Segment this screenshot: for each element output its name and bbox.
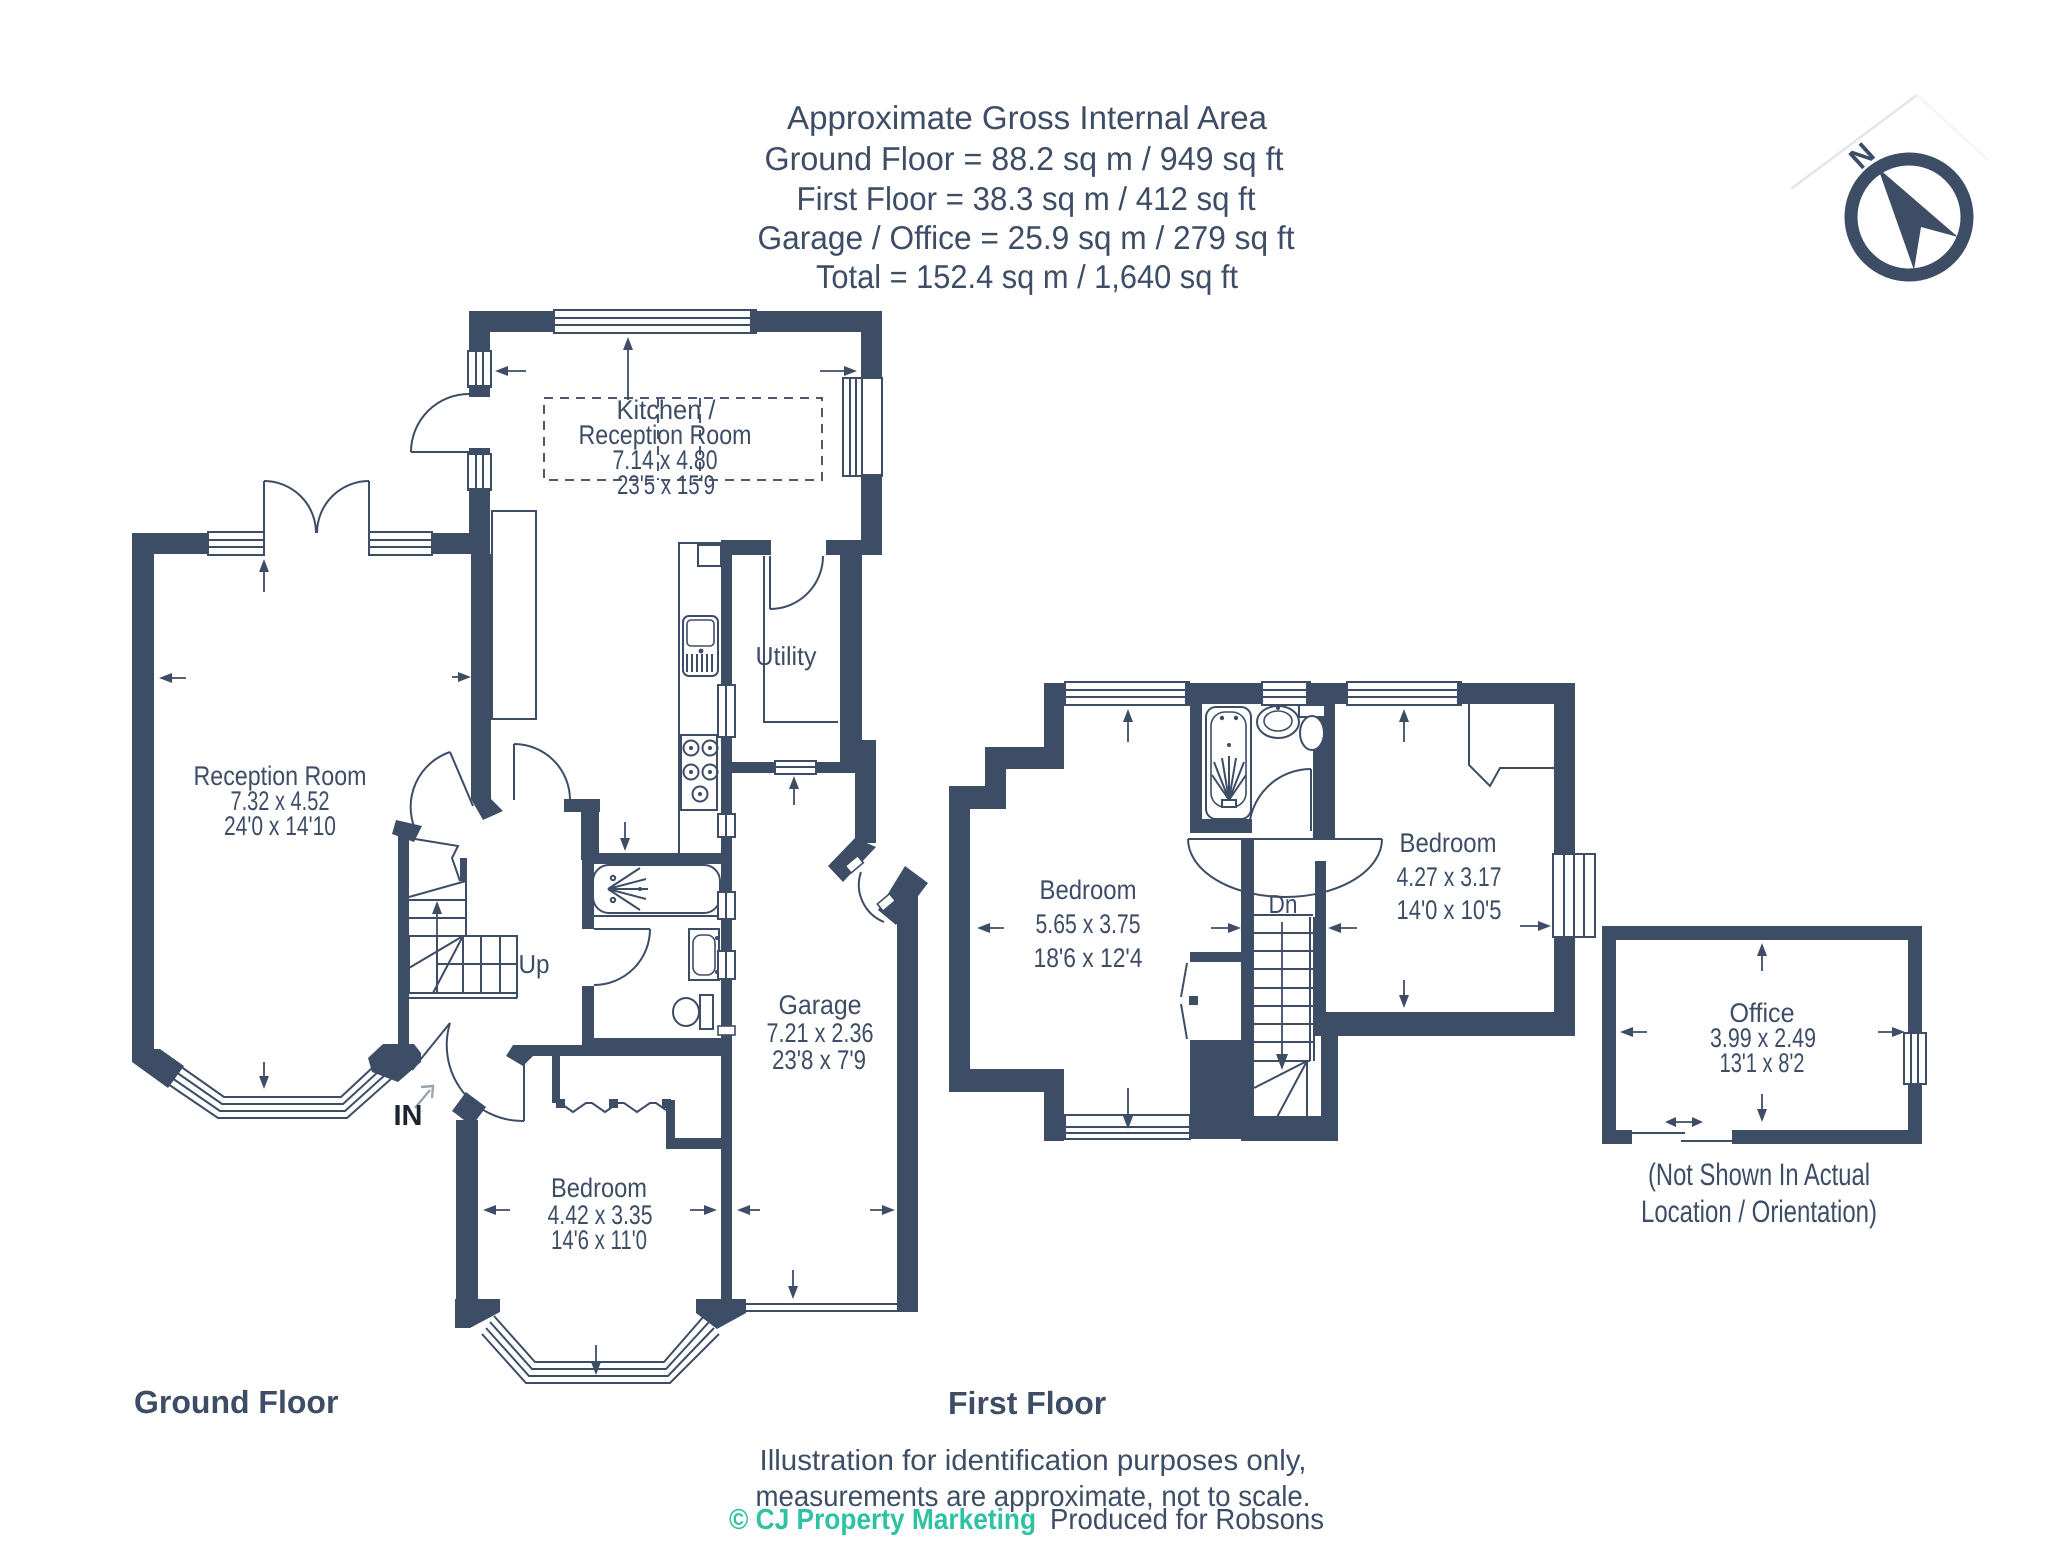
- svg-text:First Floor: First Floor: [948, 1385, 1106, 1421]
- svg-text:24'0 x 14'10: 24'0 x 14'10: [224, 811, 336, 841]
- svg-text:7.21 x 2.36: 7.21 x 2.36: [767, 1018, 874, 1048]
- svg-text:Bedroom: Bedroom: [1400, 828, 1497, 858]
- svg-text:23'5 x 15'9: 23'5 x 15'9: [617, 470, 715, 500]
- svg-text:© CJ Property Marketing: © CJ Property Marketing: [729, 1504, 1036, 1536]
- svg-text:IN: IN: [394, 1100, 423, 1132]
- svg-text:Approximate Gross Internal Are: Approximate Gross Internal Area: [787, 99, 1268, 136]
- svg-text:4.27 x 3.17: 4.27 x 3.17: [1397, 862, 1502, 892]
- svg-text:Produced for Robsons: Produced for Robsons: [1050, 1504, 1324, 1536]
- svg-text:(Not Shown In Actual: (Not Shown In Actual: [1648, 1157, 1870, 1192]
- svg-text:23'8 x 7'9: 23'8 x 7'9: [772, 1045, 866, 1075]
- svg-text:Garage: Garage: [779, 990, 862, 1020]
- svg-text:Ground Floor: Ground Floor: [134, 1384, 338, 1420]
- svg-text:13'1 x 8'2: 13'1 x 8'2: [1720, 1048, 1805, 1078]
- svg-text:First Floor = 38.3 sq m / 412: First Floor = 38.3 sq m / 412 sq ft: [797, 180, 1256, 217]
- svg-text:14'6 x 11'0: 14'6 x 11'0: [551, 1225, 647, 1255]
- svg-text:Illustration for identificatio: Illustration for identification purposes…: [760, 1445, 1307, 1477]
- svg-text:Utility: Utility: [756, 641, 817, 671]
- svg-text:14'0 x 10'5: 14'0 x 10'5: [1397, 895, 1502, 925]
- svg-text:Dn: Dn: [1269, 889, 1298, 919]
- svg-text:Bedroom: Bedroom: [1040, 875, 1137, 905]
- svg-text:5.65 x 3.75: 5.65 x 3.75: [1036, 909, 1141, 939]
- svg-text:18'6 x 12'4: 18'6 x 12'4: [1034, 943, 1143, 973]
- svg-text:Up: Up: [519, 949, 550, 979]
- svg-text:Bedroom: Bedroom: [551, 1173, 647, 1203]
- svg-text:Garage / Office = 25.9 sq m /: Garage / Office = 25.9 sq m / 279 sq ft: [758, 219, 1295, 256]
- svg-text:Location / Orientation): Location / Orientation): [1641, 1194, 1877, 1229]
- svg-text:Ground Floor = 88.2 sq m / 949: Ground Floor = 88.2 sq m / 949 sq ft: [765, 140, 1284, 177]
- svg-text:Total = 152.4 sq m / 1,640 sq: Total = 152.4 sq m / 1,640 sq ft: [816, 258, 1238, 295]
